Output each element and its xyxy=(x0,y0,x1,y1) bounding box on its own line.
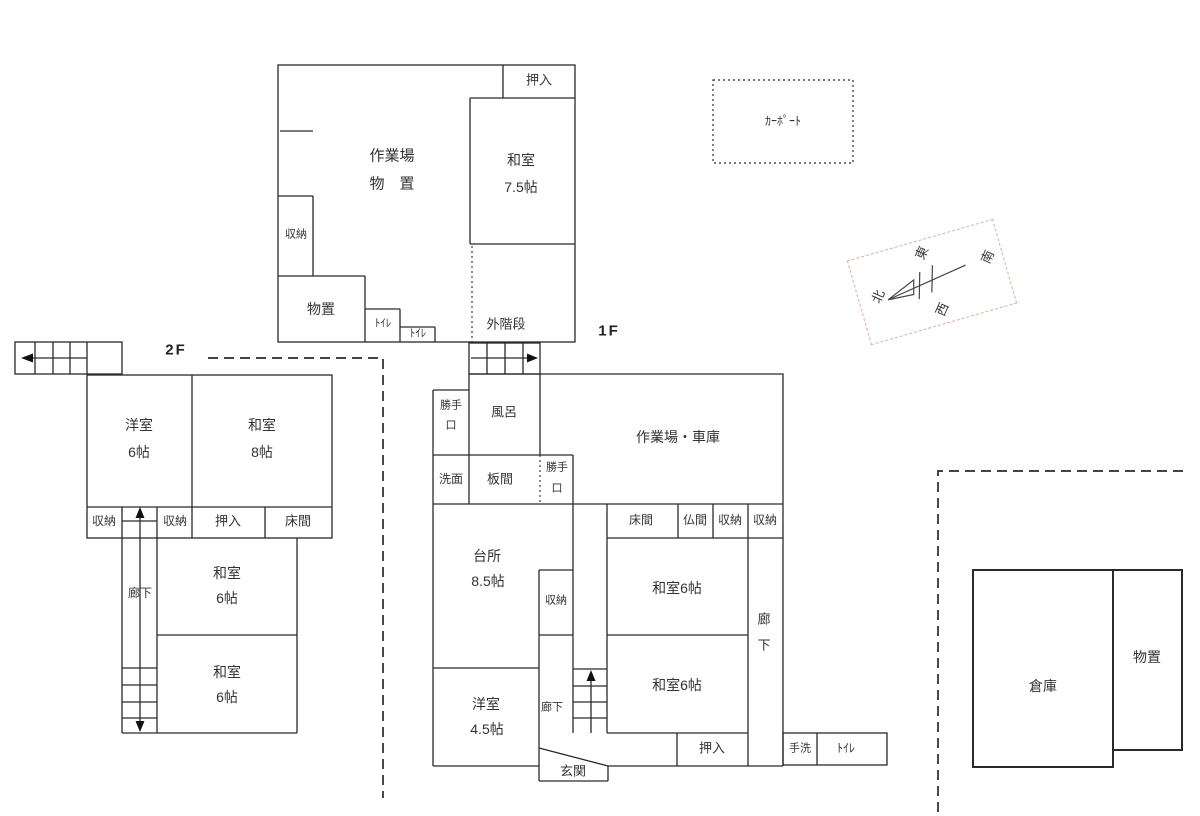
label-monooki: 物置 xyxy=(1133,649,1161,665)
label-annex-shuno: 収納 xyxy=(285,229,307,242)
label-annex-toilet-a: ﾄｲﾚ xyxy=(375,318,392,331)
label-1f-butsuma: 仏間 xyxy=(683,514,707,528)
label-1f-genkan: 玄関 xyxy=(560,765,586,780)
label-2f-tokonoma: 床間 xyxy=(285,515,311,530)
label-1f-yoshitsu: 洋室 xyxy=(472,696,500,712)
floor-plan: 北 東 南 西 2F 1F ｶｰﾎﾟｰﾄ 押入 和室 7.5帖 作業場 物 置 … xyxy=(0,0,1200,816)
label-carport: ｶｰﾎﾟｰﾄ xyxy=(765,115,801,129)
label-1f-katteguchi-nw-1: 勝手 xyxy=(440,400,462,413)
2f-entry-stairs-arrow-icon xyxy=(21,354,33,363)
label-annex-monooki-line: 物 置 xyxy=(369,175,414,192)
label-2f-washitsu6a: 和室 xyxy=(213,565,241,581)
label-1f-oshiire: 押入 xyxy=(699,742,725,757)
label-souko: 倉庫 xyxy=(1029,678,1057,694)
label-1f-shuno-b: 収納 xyxy=(753,514,777,528)
label-1f-garage: 作業場・車庫 xyxy=(636,429,720,445)
label-2f-oshiire: 押入 xyxy=(215,515,241,530)
label-annex-toilet-b: ﾄｲﾚ xyxy=(410,328,427,341)
label-1f-furo: 風呂 xyxy=(491,406,517,421)
label-2f-washitsu6b: 和室 xyxy=(213,664,241,680)
property-boundary-right xyxy=(938,471,1183,812)
label-annex-workshop: 作業場 xyxy=(369,147,414,164)
label-1f-kitchen-shuno: 収納 xyxy=(545,595,567,608)
label-1f-katteguchi-mid-2: 口 xyxy=(552,483,563,496)
label-1f-senmen: 洗面 xyxy=(439,473,463,487)
outbuilding-walls xyxy=(973,570,1182,767)
label-1f-rouka-small: 廊下 xyxy=(541,702,563,715)
souko-outline xyxy=(973,570,1113,767)
label-2f-washitsu8-size: 8帖 xyxy=(251,444,273,460)
label-1f-yoshitsu-size: 4.5帖 xyxy=(470,721,503,737)
label-1f-washitsu-b: 和室6帖 xyxy=(652,677,702,693)
label-1f-itanoma: 板間 xyxy=(487,473,513,488)
1f-stairs-up-arrow-icon xyxy=(587,670,596,681)
label-1f-shuno-a: 収納 xyxy=(718,514,742,528)
label-1f-washitsu-a: 和室6帖 xyxy=(652,580,702,596)
floor-title-2f: 2F xyxy=(165,341,187,358)
outside-stairs xyxy=(469,343,540,374)
label-1f-katteguchi-nw-2: 口 xyxy=(446,420,457,433)
label-2f-yoshitsu-size: 6帖 xyxy=(128,444,150,460)
2f-stairs-up-arrow-icon xyxy=(136,507,145,518)
second-floor-walls xyxy=(15,342,332,733)
label-1f-katteguchi-mid-1: 勝手 xyxy=(546,462,568,475)
label-2f-washitsu6b-size: 6帖 xyxy=(216,689,238,705)
outside-stairs-arrow-icon xyxy=(527,354,538,363)
label-1f-tearai: 手洗 xyxy=(789,743,811,756)
label-1f-tokonoma: 床間 xyxy=(629,514,653,528)
label-annex-washitsu: 和室 xyxy=(507,152,535,168)
label-outside-stairs: 外階段 xyxy=(486,318,525,333)
label-annex-washitsu-size: 7.5帖 xyxy=(504,179,537,195)
label-2f-washitsu8: 和室 xyxy=(248,417,276,433)
label-1f-kitchen-size: 8.5帖 xyxy=(471,573,504,589)
label-2f-yoshitsu: 洋室 xyxy=(125,417,153,433)
label-1f-kitchen: 台所 xyxy=(473,548,501,564)
label-annex-oshiire: 押入 xyxy=(526,74,552,89)
label-1f-toilet: ﾄｲﾚ xyxy=(837,742,855,756)
floor-title-1f: 1F xyxy=(598,322,620,339)
label-annex-monooki: 物置 xyxy=(307,301,335,317)
label-2f-shuno-left: 収納 xyxy=(92,515,116,529)
label-1f-rouka-east-1: 廊 xyxy=(757,613,770,628)
label-1f-rouka-east-2: 下 xyxy=(757,639,770,654)
floorplan-lines xyxy=(0,0,1200,816)
label-2f-shuno-right: 収納 xyxy=(163,515,187,529)
label-2f-washitsu6a-size: 6帖 xyxy=(216,590,238,606)
label-2f-rouka: 廊下 xyxy=(128,587,152,601)
2f-stairs-down-arrow-icon xyxy=(136,721,145,732)
